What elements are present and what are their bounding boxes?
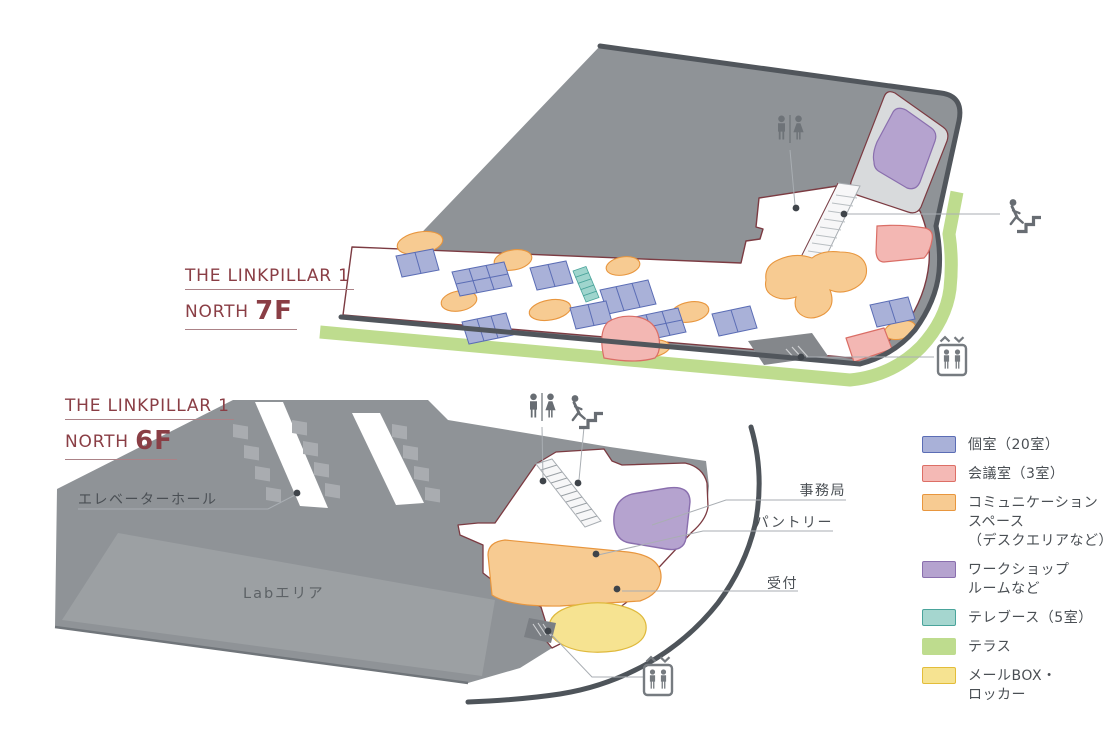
floor-map-page: { "plans": [ { "id": "f7", "building": "…	[0, 0, 1119, 748]
legend-swatch	[922, 465, 956, 482]
label-pantry: パントリー	[743, 512, 833, 532]
legend-swatch	[922, 667, 956, 684]
floor-number: 6F	[135, 426, 173, 456]
stairs-icon	[572, 395, 603, 427]
legend-item-workshop-room: ワークショップ ルームなど	[922, 561, 1118, 599]
plan-title-7f: THE LINKPILLAR 1 NORTH 7F	[185, 266, 354, 330]
elevator-icon	[938, 337, 966, 375]
legend-swatch	[922, 561, 956, 578]
label-reception: 受付	[708, 573, 798, 593]
legend: 個室（20室） 会議室（3室） コミュニケーション スペース （デスクエリアなど…	[922, 436, 1118, 715]
restroom-icon	[530, 393, 556, 421]
stairs-icon	[1010, 199, 1041, 231]
legend-swatch	[922, 494, 956, 511]
label-elevator-hall: エレベーターホール	[78, 489, 218, 509]
legend-item-meeting-room: 会議室（3室）	[922, 465, 1118, 484]
secretariat-room-6f	[614, 488, 690, 550]
legend-item-private-room: 個室（20室）	[922, 436, 1118, 455]
legend-item-communication-space: コミュニケーション スペース （デスクエリアなど）	[922, 494, 1118, 551]
floor-name: NORTH 6F	[65, 426, 177, 460]
plan-title-6f: THE LINKPILLAR 1 NORTH 6F	[65, 396, 234, 460]
label-lab-area: Labエリア	[243, 582, 325, 603]
legend-item-terrace: テラス	[922, 638, 1118, 657]
building-name: THE LINKPILLAR 1	[65, 396, 234, 420]
building-name: THE LINKPILLAR 1	[185, 266, 354, 290]
legend-swatch	[922, 609, 956, 626]
legend-swatch	[922, 638, 956, 655]
legend-label: ワークショップ ルームなど	[968, 561, 1070, 599]
floor-name: NORTH 7F	[185, 296, 297, 330]
legend-item-phone-booth: テレブース（5室）	[922, 609, 1118, 628]
floor-number: 7F	[255, 296, 293, 326]
legend-label: メールBOX・ ロッカー	[968, 667, 1057, 705]
legend-label: コミュニケーション スペース （デスクエリアなど）	[968, 494, 1113, 551]
label-secretariat: 事務局	[756, 480, 846, 500]
legend-item-mailbox-locker: メールBOX・ ロッカー	[922, 667, 1118, 705]
mailbox-locker-6f	[549, 603, 646, 652]
legend-swatch	[922, 436, 956, 453]
legend-label: テラス	[968, 638, 1011, 657]
legend-label: 個室（20室）	[968, 436, 1059, 455]
legend-label: テレブース（5室）	[968, 609, 1093, 628]
legend-label: 会議室（3室）	[968, 465, 1064, 484]
floorplan-7f	[320, 46, 1041, 380]
